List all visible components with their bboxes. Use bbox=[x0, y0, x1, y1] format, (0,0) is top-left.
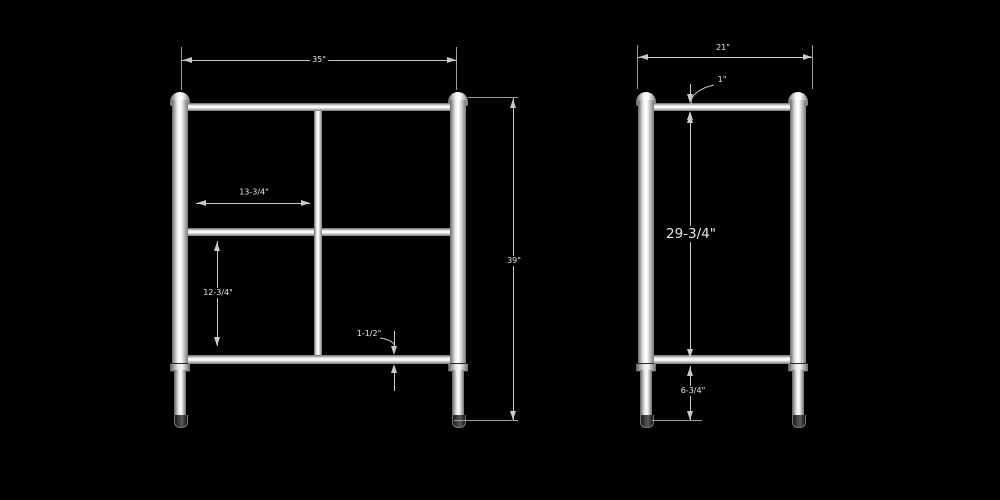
fv-height-extension-bottom bbox=[454, 420, 518, 421]
fv-rail-thickness-label: 1-1/2" bbox=[355, 329, 384, 339]
sv-foot-height-arrow-top bbox=[687, 367, 693, 376]
fv-lower-opening-label: 12-3/4" bbox=[201, 288, 235, 298]
fv-height-arrow-bottom bbox=[510, 411, 516, 420]
technical-drawing-canvas: 35" 39" 13-3/4" 12-3/4" 1-1/2" bbox=[0, 0, 1000, 500]
sv-panel-height-arrow-top bbox=[687, 114, 693, 123]
sv-depth-dimension-line bbox=[638, 57, 812, 58]
fv-lower-opening-arrow-top bbox=[214, 242, 220, 251]
fv-height-arrow-top bbox=[510, 99, 516, 108]
leader-lines bbox=[0, 0, 1000, 500]
sv-left-foot-cap bbox=[640, 415, 654, 428]
fv-overall-width-label: 35" bbox=[310, 55, 328, 65]
fv-width-arrow-right bbox=[447, 57, 456, 63]
sv-depth-extension-left bbox=[637, 45, 638, 89]
fv-left-leg bbox=[172, 100, 188, 365]
fv-left-foot-cap bbox=[174, 415, 188, 428]
fv-lower-opening-arrow-bottom bbox=[214, 337, 220, 346]
fv-shelf-span-arrow-left bbox=[197, 200, 206, 206]
fv-rail-thickness-arrow-top bbox=[391, 346, 397, 355]
fv-rail-thickness-tail-bottom bbox=[394, 373, 395, 391]
sv-depth-extension-right bbox=[812, 45, 813, 89]
fv-overall-height-label: 39" bbox=[505, 256, 523, 266]
sv-bottom-rail bbox=[654, 355, 790, 364]
sv-right-foot-cap bbox=[792, 415, 806, 428]
sv-depth-arrow-right bbox=[803, 54, 812, 60]
fv-width-extension-right bbox=[456, 47, 457, 90]
sv-top-rail bbox=[654, 103, 790, 111]
fv-top-rail bbox=[188, 103, 450, 111]
fv-shelf-span-arrow-right bbox=[301, 200, 310, 206]
sv-left-leg bbox=[638, 100, 654, 365]
sv-right-leg bbox=[790, 100, 806, 365]
sv-top-rail-height-label: 1" bbox=[716, 75, 729, 85]
fv-right-foot-cap bbox=[452, 415, 466, 428]
fv-left-foot bbox=[174, 370, 186, 418]
fv-bottom-rail bbox=[188, 355, 450, 364]
sv-panel-height-arrow-bottom bbox=[687, 349, 693, 358]
sv-foot-height-label: 6-3/4" bbox=[679, 386, 708, 396]
fv-shelf-span-label: 13-3/4" bbox=[237, 188, 271, 198]
fv-width-extension-left bbox=[181, 47, 182, 90]
fv-rail-thickness-arrow-bottom bbox=[391, 364, 397, 373]
sv-depth-arrow-left bbox=[639, 54, 648, 60]
fv-height-extension-top bbox=[468, 97, 518, 98]
sv-foot-height-arrow-bottom bbox=[687, 411, 693, 420]
sv-right-foot bbox=[792, 370, 804, 418]
sv-overall-depth-label: 21" bbox=[714, 43, 732, 53]
fv-right-leg bbox=[450, 100, 466, 365]
sv-foot-extension-line bbox=[652, 420, 702, 421]
fv-right-foot bbox=[452, 370, 464, 418]
sv-left-foot bbox=[640, 370, 652, 418]
fv-width-arrow-left bbox=[183, 57, 192, 63]
sv-panel-height-label: 29-3/4" bbox=[663, 226, 719, 242]
sv-top-rail-arrow-top bbox=[687, 94, 693, 103]
fv-shelf-span-dimension-line bbox=[196, 203, 310, 204]
fv-center-divider bbox=[314, 111, 322, 355]
